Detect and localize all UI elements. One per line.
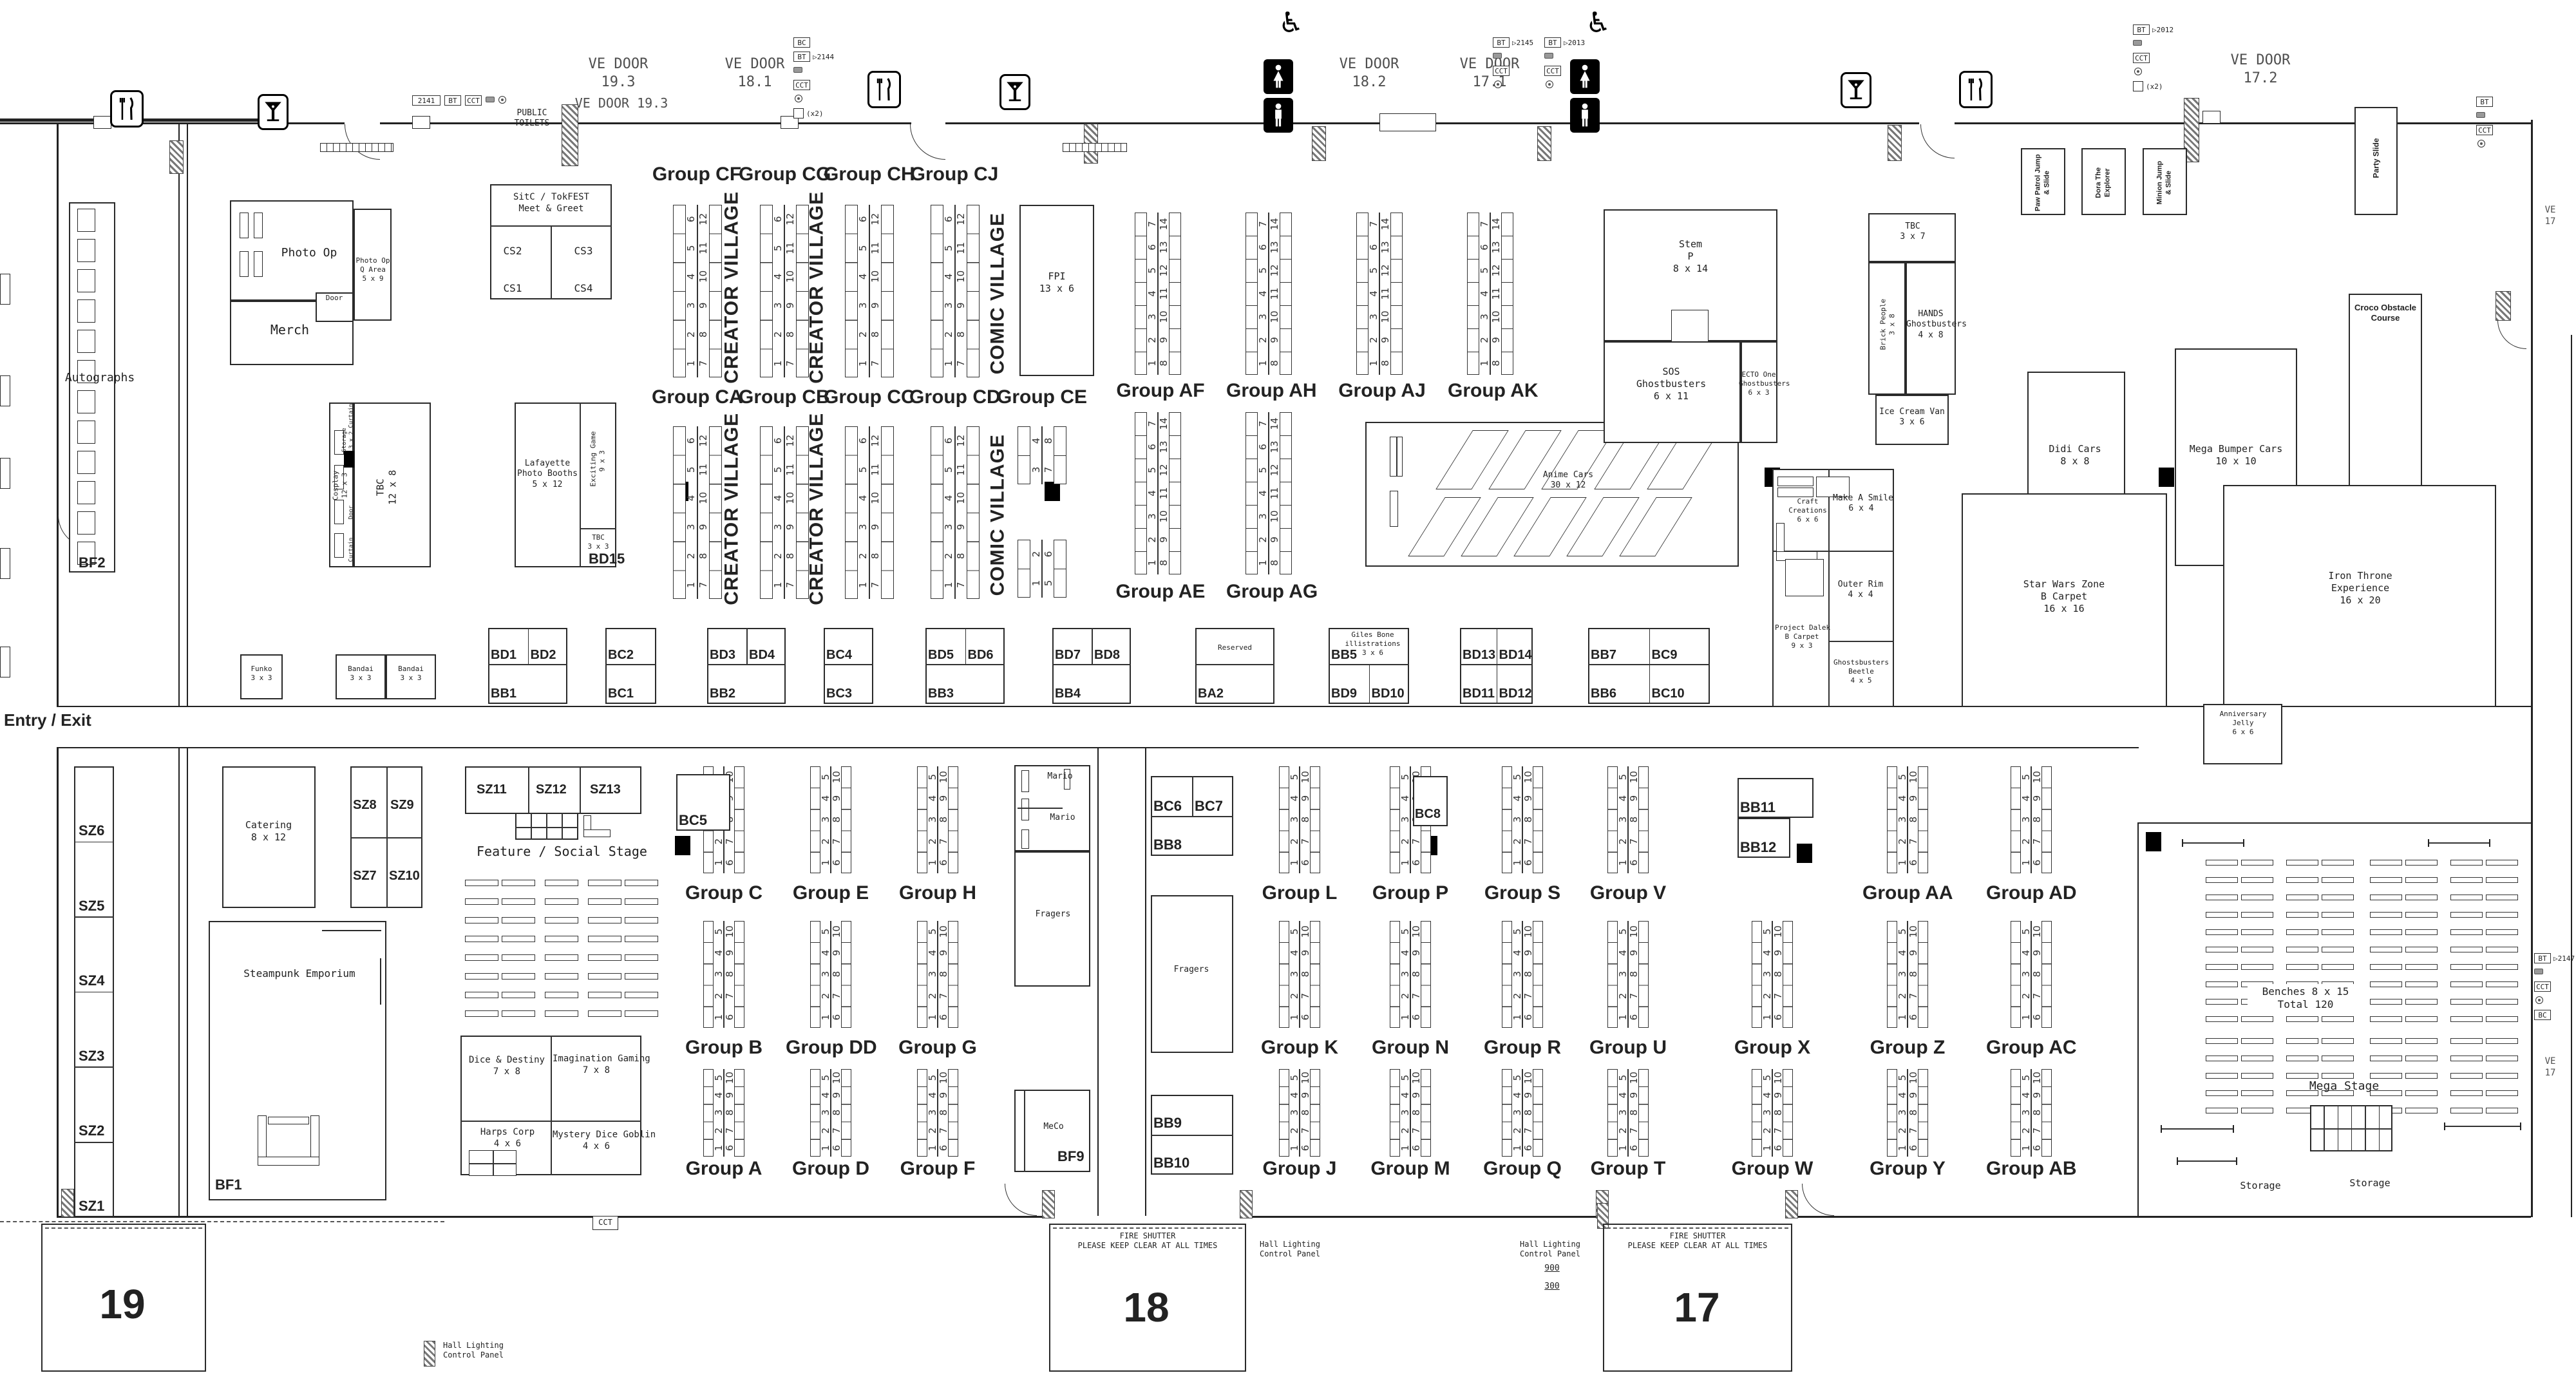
divider: [551, 1036, 552, 1175]
dimension-label: 300: [1536, 1282, 1568, 1292]
booth-number: 7: [689, 580, 718, 589]
bench: [2450, 1038, 2483, 1044]
divider: [74, 992, 114, 993]
bench: [2405, 1056, 2438, 1061]
booth-number: 7: [933, 837, 954, 846]
booth-number: 7: [1296, 1126, 1314, 1135]
booth-number: 8: [826, 815, 847, 824]
booth-number: 10: [1294, 927, 1316, 936]
booth-number: 8: [689, 330, 718, 339]
equipment-box: CCT: [1493, 66, 1510, 76]
audience-seat: [625, 898, 658, 905]
group-label: Group CB: [739, 385, 829, 410]
booth-number: 9: [933, 794, 954, 802]
booth-id: BB2: [710, 686, 748, 702]
booth-number: 9: [934, 1091, 952, 1099]
equipment-box: BT: [2534, 953, 2551, 963]
booth-number: 12: [689, 436, 718, 446]
booth-number: 14: [1263, 220, 1286, 229]
cs3-label: CS3: [564, 245, 603, 258]
booth-number: 14: [1152, 220, 1175, 229]
equipment-box: CCT: [1544, 66, 1561, 76]
dimension-line: [2428, 842, 2489, 844]
anime-cars-label: Anime Cars 30 x 12: [1520, 470, 1616, 491]
dimension-tick: [2520, 1122, 2521, 1130]
booth-id: BD14: [1499, 647, 1538, 663]
booth-number: 8: [826, 970, 847, 978]
bench: [2450, 1016, 2483, 1022]
wall: [187, 124, 188, 706]
audience-seat: [465, 880, 498, 886]
bench: [2206, 1108, 2238, 1113]
booth-number: 9: [861, 522, 890, 532]
booth-number: 7: [861, 580, 890, 589]
booth-column: [1018, 540, 1030, 598]
booth-number: 9: [689, 522, 718, 532]
door-swing: [1920, 124, 1955, 158]
harps-corp-label: Harps Corp 4 x 6: [466, 1127, 549, 1150]
booth-number: 8: [2028, 1108, 2045, 1117]
booth-number: 11: [1374, 289, 1397, 298]
booth-number: 10: [1623, 773, 1644, 781]
divider: [551, 225, 552, 299]
booth-number: 7: [2026, 992, 2047, 1000]
hall-lighting-label: Hall Lighting Control Panel: [438, 1341, 509, 1360]
group-label: Group AE: [1115, 580, 1206, 604]
party-slide-label: Party Slide: [2372, 120, 2382, 197]
booth-number: 9: [1407, 1091, 1425, 1099]
craft-creations-label: Craft Creations 6 x 6: [1783, 497, 1833, 524]
meco-label: MeCo: [1034, 1122, 1073, 1132]
equipment-box: BC: [793, 37, 810, 48]
group-label: Group V: [1583, 881, 1673, 905]
audience-seat: [465, 954, 498, 961]
mario-fixture: [1021, 829, 1029, 849]
bench: [2370, 964, 2402, 970]
audience-seat: [502, 992, 535, 998]
booth-number: 6: [1407, 1144, 1425, 1152]
group-label: Group AD: [1986, 881, 2076, 905]
fixture-line: [1396, 437, 1397, 477]
bench: [2241, 929, 2273, 935]
bench: [2322, 1038, 2354, 1044]
booth-number: 9: [1263, 336, 1286, 345]
door-swing: [1005, 1184, 1037, 1216]
bench: [2241, 1073, 2273, 1079]
cosplay-table: [334, 533, 344, 558]
booth-number: 10: [826, 927, 847, 936]
group-label: Group A: [679, 1157, 769, 1181]
audience-seat: [625, 880, 658, 886]
storage-label: Storage: [2225, 1180, 2296, 1192]
booth-number: 8: [1294, 970, 1316, 978]
wall-fixture: [0, 458, 10, 489]
equipment-label: ▷2147: [2553, 954, 2575, 963]
booth-number: 10: [826, 773, 847, 781]
dashed-line: [0, 1221, 444, 1222]
wall: [0, 122, 345, 124]
booth-number: 10: [719, 927, 740, 936]
equipment-box: CCT: [2133, 53, 2150, 63]
booth-number: 9: [1374, 336, 1397, 345]
fragers-label: Fragers: [1169, 965, 1214, 975]
mario-label: Mario: [1041, 772, 1079, 782]
catering-label: Catering 8 x 12: [231, 819, 307, 844]
booth-number: 9: [2026, 794, 2047, 802]
hall-19-label: 19: [71, 1278, 174, 1330]
divider: [528, 766, 529, 814]
divider: [925, 664, 1005, 665]
project-dalek-label: Project Dalek B Carpet 9 x 3: [1775, 623, 1829, 650]
dimension-tick: [2233, 1125, 2234, 1133]
bench: [2405, 999, 2438, 1005]
cct-label: CCT: [594, 1218, 617, 1227]
booth-number: 9: [721, 1091, 738, 1099]
ve-door-label: VE DOOR 18.2: [1318, 55, 1421, 91]
booth-id-bb11: BB11: [1740, 799, 1776, 817]
toilet-women-icon: [1570, 59, 1600, 94]
group-label: Group P: [1365, 881, 1455, 905]
booth-number: 7: [826, 992, 847, 1000]
didi-cars-label: Didi Cars 8 x 8: [2043, 443, 2107, 468]
audience-seat: [625, 917, 658, 923]
bench: [2486, 1108, 2518, 1113]
equipment-box: BT: [793, 52, 810, 62]
booth-number: 9: [1296, 1091, 1314, 1099]
audience-seat: [545, 992, 578, 998]
ve-door-label: VE DOOR 18.1: [703, 55, 806, 91]
booth-number: 9: [689, 301, 718, 310]
steampunk-label: Steampunk Emporium: [225, 967, 374, 980]
booth-number: 9: [1623, 794, 1644, 802]
photo-op-queue-label: Photo Op Q Area 5 x 9: [354, 256, 392, 283]
booth-number: 9: [1623, 949, 1644, 957]
booth-number: 8: [1152, 359, 1175, 368]
booth-column: [881, 205, 894, 377]
bench: [2322, 947, 2354, 952]
booth-number: 6: [2028, 1144, 2045, 1152]
bench: [2206, 912, 2238, 918]
bench: [2286, 1038, 2318, 1044]
door-swing: [2497, 320, 2526, 349]
booth-id-bc8: BC8: [1415, 806, 1447, 822]
bench: [2322, 1073, 2354, 1079]
group-label: Group Z: [1862, 1036, 1953, 1060]
booth-number: 9: [828, 1091, 845, 1099]
audience-seat: [588, 1010, 621, 1017]
audience-seat: [588, 898, 621, 905]
storage-label: Storage: [2334, 1177, 2405, 1189]
village-vertical-label: CREATOR VILLAGE: [719, 425, 744, 605]
booth-id: BD11: [1463, 686, 1501, 702]
booth-number: 9: [947, 522, 976, 532]
divider: [350, 837, 422, 838]
booth-id: BD12: [1499, 686, 1538, 702]
booth-number: 8: [1296, 1108, 1314, 1117]
bandai-label: Bandai 3 x 3: [337, 665, 384, 683]
bench: [2370, 877, 2402, 883]
bar-icon: [999, 74, 1030, 110]
equipment-box: CCT: [2476, 125, 2493, 135]
wall: [1097, 748, 1099, 1216]
food-icon: [110, 90, 144, 128]
sensor-icon: [2134, 68, 2142, 75]
door-label: Door: [317, 294, 352, 303]
booth-number: 10: [1294, 773, 1316, 781]
bench: [2241, 877, 2273, 883]
bench: [2486, 895, 2518, 900]
wall: [57, 122, 59, 706]
booth-column: [845, 205, 858, 377]
wall: [2571, 335, 2572, 1217]
divider: [1195, 664, 1274, 665]
booth-number: 14: [1263, 419, 1286, 428]
booth-number: 8: [719, 970, 740, 978]
wheelchair-icon: ♿: [1586, 6, 1611, 39]
divider: [460, 1121, 641, 1122]
ve-door-label: VE 17: [2536, 205, 2564, 227]
dimension-tick: [2161, 1125, 2162, 1133]
public-toilets-label: PUBLIC TOILETS: [501, 108, 563, 129]
bench: [2241, 912, 2273, 918]
sos-label: SOS Ghostbusters 6 x 11: [1623, 366, 1719, 402]
toilet-men-icon: [1264, 98, 1293, 133]
bench: [2405, 947, 2438, 952]
audience-seat: [465, 973, 498, 980]
wall-junction-box: [1379, 113, 1436, 131]
booth-number: 8: [2026, 815, 2047, 824]
dimension-tick: [2489, 839, 2490, 847]
divider: [469, 1163, 516, 1164]
tbc-room-label: TBC 12 x 8: [374, 468, 399, 507]
booth-number: 7: [721, 1126, 738, 1135]
booth-number: 6: [1623, 858, 1644, 867]
booth-number: 11: [1152, 289, 1175, 298]
bench: [2405, 912, 2438, 918]
booth-id-bc5: BC5: [679, 811, 712, 829]
group-label: Group X: [1727, 1036, 1817, 1060]
hatched-wall-post: [424, 1341, 435, 1367]
bench: [2370, 929, 2402, 935]
steampunk-fixture: [258, 1157, 319, 1166]
audience-seat: [545, 954, 578, 961]
dimension-tick: [2236, 1157, 2237, 1165]
bench: [2486, 912, 2518, 918]
booth-number: 7: [1294, 837, 1316, 846]
bench: [2486, 860, 2518, 866]
autograph-table: [77, 239, 95, 262]
group-label: Group AG: [1226, 580, 1316, 604]
booth-number: 6: [1767, 1013, 1788, 1021]
group-label: Group Y: [1862, 1157, 1953, 1181]
booth-number: 12: [776, 214, 805, 224]
photo-op-light: [254, 251, 263, 277]
group-label: Group K: [1255, 1036, 1345, 1060]
booth-number: 6: [1294, 1013, 1316, 1021]
booth-column: [1018, 426, 1030, 484]
bench: [2450, 947, 2483, 952]
bench: [2241, 1016, 2273, 1022]
booth-number: 6: [2026, 1013, 2047, 1021]
divider: [605, 664, 656, 665]
hall-17-label: 17: [1645, 1282, 1748, 1333]
booth-number: 8: [934, 1108, 952, 1117]
divider: [1151, 1135, 1233, 1136]
booth-number: 10: [1152, 312, 1175, 321]
dimension-line: [2177, 1160, 2236, 1162]
dimension-tick: [2182, 839, 2183, 847]
bench: [2486, 999, 2518, 1005]
booth-divider: [784, 426, 785, 599]
village-vertical-label: CREATOR VILLAGE: [804, 204, 829, 384]
sensor-icon: [498, 96, 506, 104]
group-label: Group E: [786, 881, 876, 905]
lafayette-label: Lafayette Photo Booths 5 x 12: [515, 459, 580, 490]
door-swing: [1802, 1184, 1834, 1216]
sensor-icon: [2477, 140, 2485, 147]
group-label: Group W: [1727, 1157, 1817, 1181]
booth-number: 13: [1263, 243, 1286, 252]
dimension-label: 900: [1536, 1264, 1568, 1274]
storage-label: Storage 3 x 2: [341, 424, 356, 456]
booth-number: 10: [2026, 927, 2047, 936]
booth-number: 10: [689, 493, 718, 503]
autograph-table: [77, 390, 95, 413]
bench: [2450, 1056, 2483, 1061]
booth-column: [760, 205, 773, 377]
booth-column: [1054, 540, 1066, 598]
booth-number: 7: [1902, 837, 1924, 846]
ecto-label: ECTO One Ghostbusters 6 x 3: [1739, 370, 1779, 397]
booth-number: 10: [1296, 1074, 1314, 1082]
wall: [2139, 822, 2532, 824]
booth-number: 7: [2026, 837, 2047, 846]
booth-number: 11: [689, 465, 718, 475]
booth-number: 14: [1152, 419, 1175, 428]
booth-number: 8: [689, 551, 718, 561]
structural-pillar: [1045, 482, 1060, 501]
equipment-label: ▷2144: [813, 53, 834, 61]
equipment-box: BT: [2133, 24, 2150, 35]
autograph-table: [77, 299, 95, 323]
booth-number: 10: [1625, 1074, 1642, 1082]
bench: [2370, 1038, 2402, 1044]
group-label: Group AC: [1986, 1036, 2076, 1060]
booth-number: 7: [1517, 992, 1539, 1000]
booth-number: 8: [1517, 815, 1539, 824]
bench: [2486, 1073, 2518, 1079]
hatched-wall-post: [61, 1189, 74, 1217]
booth-number: 6: [1902, 1013, 1924, 1021]
ride-label: Paw Patrol Jump & Slide: [2034, 152, 2052, 214]
booth-number: 11: [776, 243, 805, 253]
sz-booth-label: SZ4: [79, 972, 113, 990]
booth-number: 9: [776, 301, 805, 310]
bench: [2206, 964, 2238, 970]
village-vertical-label: COMIC VILLAGE: [985, 204, 1010, 384]
bench: [2405, 860, 2438, 866]
booth-id: BD6: [968, 647, 1007, 663]
divider: [2310, 1128, 2392, 1130]
bench: [2486, 1038, 2518, 1044]
booth-number: 7: [719, 992, 740, 1000]
booth-number: 10: [1623, 927, 1644, 936]
bench: [2241, 947, 2273, 952]
wall: [57, 748, 59, 1217]
bench: [2450, 964, 2483, 970]
booth-number: 9: [1767, 949, 1788, 957]
bench: [2450, 860, 2483, 866]
booth-number: 12: [947, 214, 976, 224]
booth-number: 8: [1034, 436, 1063, 446]
tbc37-label: TBC 3 x 7: [1884, 222, 1942, 243]
booth-id: BB5: [1331, 647, 1370, 663]
audience-seat: [502, 936, 535, 942]
booth-id-bb9: BB9: [1153, 1114, 1184, 1132]
group-label: Group AJ: [1337, 379, 1427, 403]
booth-number: 9: [861, 301, 890, 310]
village-vertical-label: COMIC VILLAGE: [985, 425, 1010, 605]
cs4-label: CS4: [564, 282, 603, 295]
audience-seat: [465, 992, 498, 998]
steampunk-fixture: [268, 1117, 309, 1124]
divider: [1828, 641, 1894, 642]
booth-divider: [1041, 426, 1043, 484]
booth-number: 6: [826, 1013, 847, 1021]
booth-number: 9: [1263, 535, 1286, 544]
booth-number: 10: [1484, 312, 1508, 321]
food-icon: [867, 71, 901, 108]
bench: [2206, 981, 2238, 987]
booth-number: 9: [2028, 1091, 2045, 1099]
wall-junction-box: [412, 116, 430, 129]
hatched-wall-post: [1042, 1190, 1055, 1218]
booth-divider: [869, 426, 870, 599]
mario-fixture: [1021, 770, 1029, 792]
bench: [2450, 999, 2483, 1005]
structural-pillar: [2159, 468, 2174, 487]
craft-shelf: [1777, 477, 1814, 486]
bench: [2370, 1073, 2402, 1079]
booth-number: 9: [1517, 949, 1539, 957]
booth-number: 7: [1034, 465, 1063, 475]
booth-number: 11: [947, 465, 976, 475]
booth-divider: [784, 205, 785, 377]
booth-number: 10: [1407, 1074, 1425, 1082]
booth-number: 7: [1769, 1126, 1786, 1135]
booth-number: 9: [719, 949, 740, 957]
equipment-box: CCT: [793, 80, 810, 90]
booth-id: BD8: [1094, 647, 1133, 663]
hatched-wall-post: [1312, 126, 1326, 161]
booth-number: 8: [1263, 359, 1286, 368]
booth-number: 7: [1407, 1126, 1425, 1135]
bench: [2322, 912, 2354, 918]
ve-door-label: VE DOOR 19.3: [567, 55, 670, 91]
divider: [1052, 664, 1131, 665]
booth-number: 6: [933, 1013, 954, 1021]
booth-number: 6: [933, 858, 954, 867]
cosplay-label: Cosplay 12 x 3: [331, 466, 349, 505]
booth-number: 8: [1263, 558, 1286, 567]
cctv-camera-icon: [2534, 969, 2543, 974]
equipment-box: 2141: [412, 95, 440, 106]
booth-id-bf1: BF1: [215, 1176, 254, 1194]
bar-icon: [1841, 72, 1871, 108]
bench: [2486, 964, 2518, 970]
bench: [2405, 895, 2438, 900]
bench: [2405, 964, 2438, 970]
